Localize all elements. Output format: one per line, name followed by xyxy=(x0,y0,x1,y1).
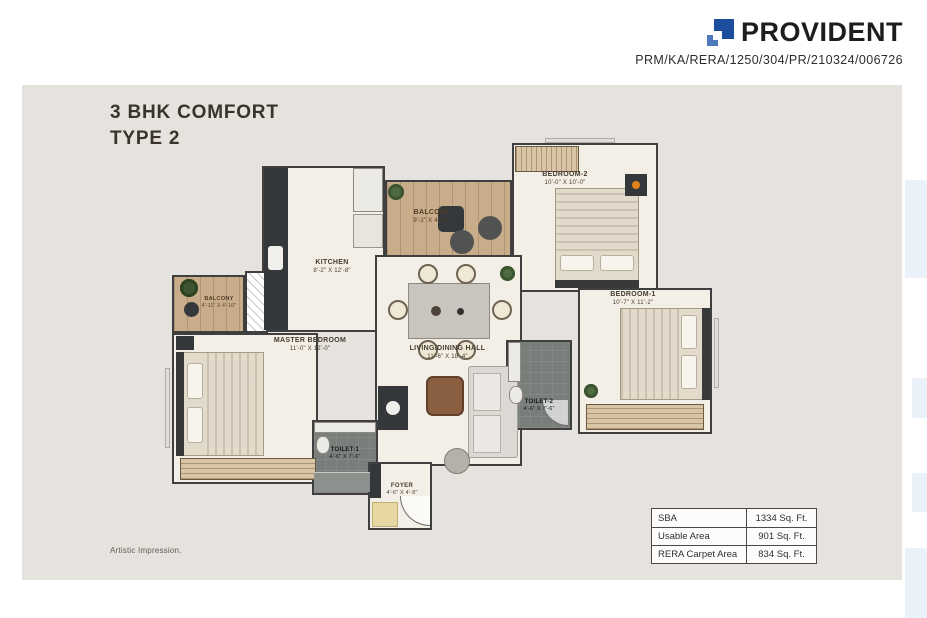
pillow xyxy=(600,255,634,271)
room-label-living-dining: LIVING/DINING HALL 11'-6" X 18'-4" xyxy=(385,344,510,362)
bed-bedroom-1 xyxy=(620,308,710,400)
dining-table xyxy=(408,283,490,339)
plant-icon xyxy=(180,279,198,297)
bed-blanket xyxy=(621,309,679,399)
bed-master xyxy=(176,352,264,456)
pillow xyxy=(560,255,594,271)
edge-decoration xyxy=(905,180,927,278)
basin-icon xyxy=(386,401,400,415)
room-dimensions: 11'-6" X 18'-4" xyxy=(385,353,510,361)
balcony-chair xyxy=(478,216,502,240)
rera-number: PRM/KA/RERA/1250/304/PR/210324/006726 xyxy=(635,53,903,67)
provident-logo-icon xyxy=(707,19,734,46)
plant-icon xyxy=(388,184,404,200)
pillow xyxy=(187,363,203,399)
table-decor xyxy=(431,306,441,316)
area-value: 834 Sq. Ft. xyxy=(747,546,816,563)
room-dimensions: 10'-7" X 11'-2" xyxy=(578,299,688,307)
lamp-icon xyxy=(632,181,640,189)
area-label: RERA Carpet Area xyxy=(652,546,747,563)
room-name: BEDROOM-1 xyxy=(578,290,688,299)
room-dimensions: 4'-6" X 7'-6" xyxy=(314,454,376,461)
room-label-bedroom-2: BEDROOM-2 10'-0" X 10'-0" xyxy=(515,170,615,188)
room-name: BEDROOM-2 xyxy=(515,170,615,179)
kitchen-sink xyxy=(268,246,283,270)
room-label-bedroom-1: BEDROOM-1 10'-7" X 11'-2" xyxy=(578,290,688,308)
room-label-master-bedroom: MASTER BEDROOM 11'-0" X 12'-0" xyxy=(245,336,375,354)
balcony-chair xyxy=(450,230,474,254)
pillow xyxy=(681,355,697,389)
table-row: RERA Carpet Area 834 Sq. Ft. xyxy=(652,545,816,563)
dining-chair xyxy=(388,300,408,320)
bed-blanket xyxy=(207,353,263,455)
bed-blanket xyxy=(556,189,638,251)
room-label-balcony-top: BALCONY 9'-2" X 4'-10" xyxy=(392,208,472,226)
room-name: TOILET-2 xyxy=(510,398,568,406)
dining-chair xyxy=(418,264,438,284)
room-dimensions: 4'-6" X 4'-8" xyxy=(374,490,430,497)
foyer-mat xyxy=(372,502,398,527)
room-name: KITCHEN xyxy=(282,258,382,267)
area-value: 1334 Sq. Ft. xyxy=(747,509,816,527)
wash-basin-counter xyxy=(378,386,408,430)
window xyxy=(165,368,170,448)
room-dimensions: 10'-0" X 10'-0" xyxy=(515,179,615,187)
room-dimensions: 8'-2" X 12'-8" xyxy=(282,267,382,275)
window xyxy=(545,138,615,143)
room-name: MASTER BEDROOM xyxy=(245,336,375,345)
artistic-impression-note: Artistic Impression. xyxy=(110,546,182,555)
pillow xyxy=(187,407,203,443)
coffee-table xyxy=(444,448,470,474)
nightstand xyxy=(625,174,647,196)
room-dimensions: 4'-11" X 4'-10" xyxy=(194,303,244,310)
nightstand xyxy=(176,336,194,350)
headboard xyxy=(702,308,710,400)
area-value: 901 Sq. Ft. xyxy=(747,528,816,545)
room-name: FOYER xyxy=(374,482,430,490)
edge-decoration xyxy=(905,548,927,618)
room-label-balcony-left: BALCONY 4'-11" X 4'-10" xyxy=(194,296,244,310)
room-label-toilet-2: TOILET-2 4'-6" X 7'-6" xyxy=(510,398,568,414)
room-dimensions: 11'-0" X 12'-0" xyxy=(245,345,375,353)
window xyxy=(714,318,719,388)
refrigerator xyxy=(353,168,383,212)
kitchen-cabinet xyxy=(353,214,383,248)
room-name: LIVING/DINING HALL xyxy=(385,344,510,353)
sofa-cushion xyxy=(473,415,501,453)
room-dimensions: 9'-2" X 4'-10" xyxy=(392,217,472,225)
headboard xyxy=(176,352,184,456)
toilet1-shower xyxy=(314,472,376,492)
room-dimensions: 4'-6" X 7'-6" xyxy=(510,406,568,413)
plant-icon xyxy=(584,384,598,398)
page: PROVIDENT PRM/KA/RERA/1250/304/PR/210324… xyxy=(0,0,927,618)
edge-decoration xyxy=(912,473,927,512)
floor-plan: KITCHEN 8'-2" X 12'-8" BALCONY 9'-2" X 4… xyxy=(150,128,735,543)
toilet1-counter xyxy=(314,422,376,433)
pillow xyxy=(681,315,697,349)
room-label-kitchen: KITCHEN 8'-2" X 12'-8" xyxy=(282,258,382,276)
sofa-cushion xyxy=(473,373,501,411)
dining-chair xyxy=(456,264,476,284)
edge-decoration xyxy=(912,378,927,418)
room-label-foyer: FOYER 4'-6" X 4'-8" xyxy=(374,482,430,498)
brand-logo: PROVIDENT xyxy=(707,17,903,48)
wardrobe-bedroom-1 xyxy=(586,404,704,430)
brand-name: PROVIDENT xyxy=(741,17,903,48)
room-name: BALCONY xyxy=(392,208,472,217)
logo-square-white xyxy=(713,31,722,40)
wardrobe-master xyxy=(180,458,316,480)
wardrobe-bedroom-2 xyxy=(515,146,579,172)
room-name: TOILET-1 xyxy=(314,446,376,454)
dining-chair xyxy=(492,300,512,320)
headboard xyxy=(555,280,639,288)
plant-icon xyxy=(500,266,515,281)
room-label-toilet-1: TOILET-1 4'-6" X 7'-6" xyxy=(314,446,376,462)
room-name: BALCONY xyxy=(194,296,244,303)
armchair xyxy=(426,376,464,416)
bed-bedroom-2 xyxy=(555,188,639,288)
title-line-1: 3 BHK COMFORT xyxy=(110,100,279,126)
table-decor xyxy=(457,308,464,315)
